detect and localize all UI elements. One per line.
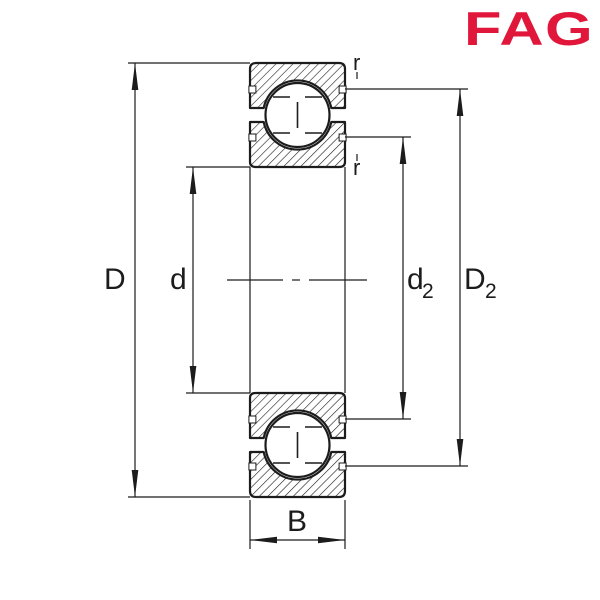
dim-B-arrow-left — [250, 537, 277, 544]
dim-B-arrow-right — [318, 537, 345, 544]
dim-D-arrow-down — [132, 470, 139, 497]
chamfer-r-top-text: r — [353, 50, 360, 75]
dimension-label-d2-subscript: 2 — [422, 280, 434, 303]
shield-groove-notch — [249, 463, 256, 470]
chamfer-label-r-bottom: r — [353, 154, 360, 180]
dim-d-arrow-up — [190, 167, 197, 194]
dimension-label-d: d — [170, 263, 187, 296]
dim-d2-arrow-up — [400, 137, 407, 164]
bearing-drawing-page: D d d 2 D 2 — [0, 0, 600, 600]
bearing-bottom-section — [249, 393, 346, 497]
fag-logo: FAG — [464, 2, 594, 55]
shield-groove-notch — [249, 86, 256, 93]
dimension-label-B: B — [287, 505, 307, 538]
dim-d-arrow-down — [190, 366, 197, 393]
bearing-drawing-svg: D d d 2 D 2 — [0, 0, 600, 600]
dim-D-arrow-up — [132, 63, 139, 90]
dimension-label-D2-base: D — [464, 263, 486, 296]
dimension-label-D: D — [104, 263, 126, 296]
shield-groove-notch — [249, 416, 256, 423]
dimension-B: B — [250, 500, 345, 549]
dim-d2-arrow-down — [400, 392, 407, 419]
dimension-label-D2-subscript: 2 — [485, 280, 497, 303]
dim-D2-arrow-up — [457, 89, 464, 116]
bearing-top-section — [249, 63, 346, 167]
dim-D2-arrow-down — [457, 439, 464, 466]
shield-groove-notch — [249, 134, 256, 141]
chamfer-label-r-top: r — [353, 50, 360, 79]
